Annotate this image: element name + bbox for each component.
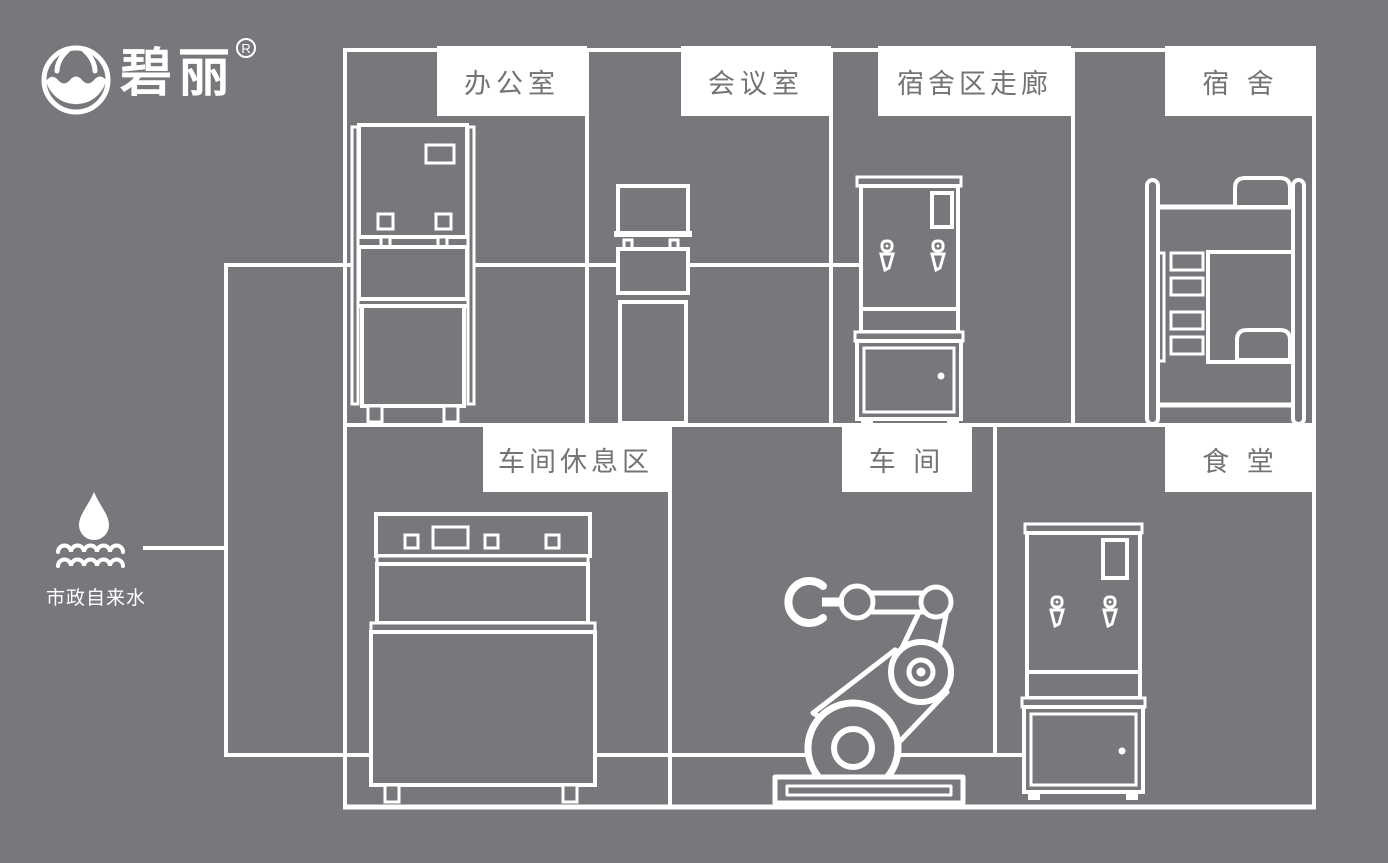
registered-trademark-icon: R — [236, 38, 256, 58]
brand-logo-icon — [44, 48, 108, 112]
display-panel — [433, 527, 468, 548]
display-panel — [426, 145, 454, 163]
canteen-water-boiler — [1022, 524, 1145, 800]
water-drop-icon — [79, 492, 109, 540]
room-label-dorm: 宿 舍 — [1165, 46, 1316, 116]
robot-gripper — [788, 581, 823, 623]
installation-diagram: 碧丽 R 市政自来水 办公室 会议室 宿舍区走廊 宿 舍 车间休息区 车 间 食… — [0, 0, 1388, 863]
room-label-workshop: 车 间 — [842, 427, 972, 492]
office-water-dispenser — [352, 125, 474, 422]
display-panel — [932, 193, 952, 227]
tap-icon — [1104, 597, 1116, 626]
room-label-office: 办公室 — [437, 46, 587, 116]
tap-icon — [1051, 597, 1063, 626]
pillow-bottom — [1237, 330, 1290, 360]
rest-area-water-dispenser — [371, 514, 595, 802]
wave-icon — [58, 560, 123, 567]
robot-platform — [775, 777, 963, 803]
meeting-water-dispenser — [614, 186, 692, 423]
robot-arm — [775, 581, 963, 803]
bed-post-left — [1147, 180, 1158, 424]
robot-wrist-joint — [841, 586, 873, 618]
bed-post-right — [1293, 180, 1304, 424]
room-label-canteen: 食 堂 — [1165, 427, 1316, 492]
water-source-icon — [58, 492, 123, 566]
corridor-water-boiler — [855, 177, 963, 426]
robot-elbow-joint — [921, 587, 951, 617]
water-source-label: 市政自来水 — [34, 583, 158, 610]
tap-icon — [932, 241, 944, 270]
brand-logo: 碧丽 R — [112, 36, 256, 112]
wave-icon — [58, 546, 123, 553]
brand-name: 碧丽 — [120, 36, 236, 112]
keyhole — [1119, 748, 1126, 755]
robot-forearm — [872, 593, 924, 612]
bunk-bed — [1147, 178, 1304, 424]
room-label-meeting: 会议室 — [681, 46, 831, 116]
room-label-rest-area: 车间休息区 — [483, 427, 668, 492]
pillow-top — [1235, 178, 1290, 207]
tap-icon — [881, 241, 893, 270]
display-panel — [1103, 540, 1127, 578]
keyhole — [938, 373, 945, 380]
room-label-corridor: 宿舍区走廊 — [878, 46, 1071, 116]
